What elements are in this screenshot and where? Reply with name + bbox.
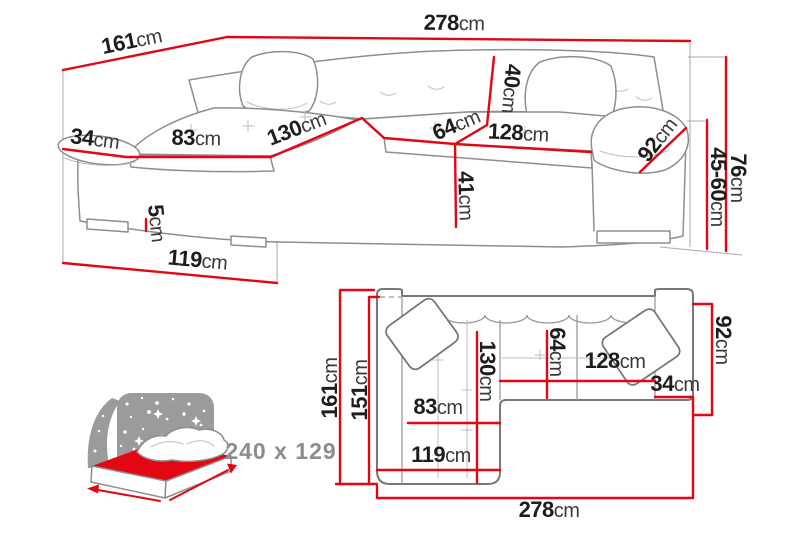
dim-label-chaise-seat-width: 83cm: [171, 125, 221, 151]
perspective-view: 278cm 161cm 34cm 83cm 130cm 64cm 128cm 4…: [57, 10, 751, 283]
plan-label-seat-depth: 64cm: [545, 327, 570, 376]
plan-dim-line-right-depth: [693, 304, 712, 415]
plan-label-total-width: 278cm: [519, 497, 580, 522]
dim-label-chaise-outer: 119cm: [167, 244, 229, 274]
dim-label-seat-height: 41cm: [453, 171, 480, 221]
leg-front-left: [87, 219, 128, 232]
plan-label-inner-depth: 151cm: [347, 360, 372, 421]
leg-front-right: [597, 231, 670, 243]
plan-label-seat-width: 128cm: [585, 348, 646, 373]
sleeping-area-label: 240 x 129: [225, 438, 336, 464]
dim-label-total-width: 278cm: [424, 10, 485, 36]
sleeping-function-icon: [87, 393, 237, 501]
pillow-left: [240, 52, 318, 116]
plan-label-right-depth: 92cm: [711, 315, 736, 364]
diagram-canvas: 278cm 161cm 34cm 83cm 130cm 64cm 128cm 4…: [0, 0, 800, 533]
top-view: 161cm 151cm 130cm 64cm 92cm 128cm 34cm 8…: [317, 289, 736, 522]
dim-line-total-width: [227, 37, 690, 41]
dim-label-total-depth: 161cm: [99, 22, 164, 59]
plan-label-right-armrest: 34cm: [650, 371, 699, 396]
plan-label-chaise-length: 130cm: [475, 341, 500, 402]
leg-front-mid: [231, 236, 266, 247]
dim-label-leg-height: 5cm: [143, 203, 172, 243]
plan-label-chaise-outer: 119cm: [411, 442, 471, 467]
plan-label-chaise-seat: 83cm: [413, 394, 462, 419]
headboard-swoosh: [88, 398, 120, 468]
sofa-dimensions-diagram: 278cm 161cm 34cm 83cm 130cm 64cm 128cm 4…: [0, 0, 800, 533]
plan-label-total-depth: 161cm: [317, 358, 342, 419]
dim-label-armrest-height: 45-60cm: [706, 147, 731, 226]
